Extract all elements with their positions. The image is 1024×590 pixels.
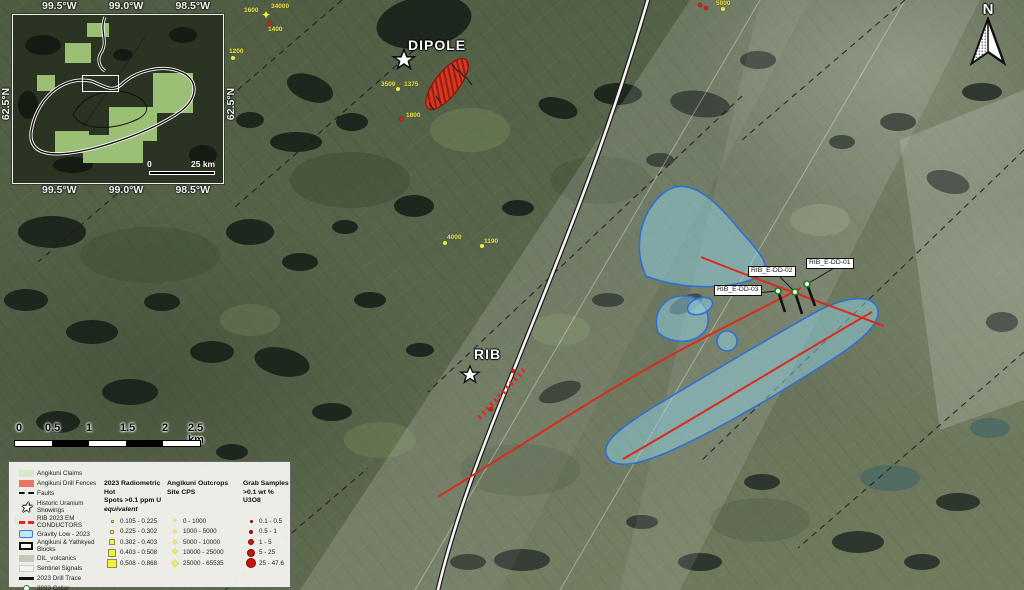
- legend-item-label: Faults: [37, 490, 54, 497]
- spot-value-label: 34000: [271, 3, 289, 10]
- legend-item-label: 2023 Collar: [37, 585, 69, 590]
- outcrops-class-row: 0 - 1000: [167, 516, 239, 527]
- ydot-marker: [480, 244, 484, 248]
- dipole-hotspot-polygon: [418, 52, 475, 116]
- radiometric-range: 0.508 - 0.868: [120, 560, 157, 567]
- radiometric-class-row: 0.225 - 0.302: [104, 527, 164, 538]
- legend-symbol-icon: [19, 521, 34, 524]
- ydot-marker: [396, 87, 400, 91]
- outcrops-header-2: Site CPS: [167, 489, 239, 498]
- legend-symbol-icon: [20, 500, 33, 514]
- legend-item-label: Angikuni & Yathkyed Blocks: [37, 539, 107, 553]
- scale-tick: 1: [86, 422, 92, 434]
- outcrops-star-icon: [173, 518, 177, 524]
- legend-item: Faults: [15, 488, 107, 498]
- legend-item: Gravity Low - 2023: [15, 529, 107, 539]
- inset-lon-labels-bottom: 99.5°W99.0°W98.5°W: [42, 184, 210, 196]
- legend-item: RIB 2023 EM CONDUCTORS: [15, 515, 107, 529]
- radiometric-range: 0.403 - 0.508: [120, 549, 157, 556]
- scale-tick: 0: [16, 422, 22, 434]
- legend-symbol-icon: [19, 577, 34, 580]
- radiometric-header-3: equivalent: [104, 506, 164, 515]
- inset-scale-bar: [149, 171, 215, 175]
- legend-grab-samples-column: Grab Samples >0.1 wt % U3O8 0.1 - 0.5 0.…: [243, 480, 291, 506]
- radiometric-header-2: Spots >0.1 ppm U: [104, 497, 164, 506]
- drill-collar-icon: [792, 289, 798, 295]
- rdot-marker: [511, 369, 515, 373]
- legend-symbol-icon: [19, 542, 33, 550]
- legend-item: Angikuni & Yathkyed Blocks: [15, 539, 107, 553]
- grab-header-1: Grab Samples: [243, 480, 291, 489]
- rdot-marker: [698, 3, 702, 7]
- lon-label: 99.0°W: [109, 0, 144, 12]
- legend-item-label: Angikuni Claims: [37, 470, 82, 477]
- dipole-target-label: DIPOLE: [408, 37, 466, 53]
- outcrops-range: 25000 - 65535: [183, 560, 224, 567]
- outcrops-range: 1000 - 5000: [183, 528, 217, 535]
- grab-range: 1 - 5: [259, 539, 272, 546]
- outcrops-star-icon: [172, 528, 177, 536]
- lon-label: 98.5°W: [175, 184, 210, 196]
- legend-item-list: Angikuni Claims Angikuni Drill Fences Fa…: [15, 468, 107, 590]
- radiometric-square-icon: [108, 549, 116, 557]
- spot-value-label: 1400: [268, 26, 282, 33]
- grab-dot-icon: [250, 520, 253, 523]
- legend-item-label: RIB 2023 EM CONDUCTORS: [37, 515, 107, 529]
- radiometric-class-row: 0.403 - 0.508: [104, 548, 164, 559]
- scale-tick: 1.5: [120, 422, 135, 434]
- outcrops-range: 5000 - 10000: [183, 539, 220, 546]
- map-scale-bar: 00.511.522.5 km: [12, 422, 222, 454]
- lon-label: 98.5°W: [175, 0, 210, 12]
- radiometric-range: 0.105 - 0.225: [120, 518, 157, 525]
- rib-target-label: RIB: [474, 346, 501, 362]
- radiometric-range: 0.302 - 0.403: [120, 539, 157, 546]
- radiometric-square-icon: [110, 530, 115, 535]
- outcrops-classes: 0 - 1000 1000 - 5000 5000 - 10000 10000 …: [167, 516, 239, 569]
- rdot-marker: [704, 6, 708, 10]
- radiometric-header-1: 2023 Radiometric Hot: [104, 480, 164, 497]
- legend-item: 2023 Collar: [15, 583, 107, 590]
- rdot-marker: [489, 407, 493, 411]
- legend-item: Sentinel Signals: [15, 563, 107, 573]
- grab-dot-icon: [247, 549, 255, 557]
- drill-collar-icon: [775, 288, 781, 294]
- lon-label: 99.5°W: [42, 184, 77, 196]
- legend-item-label: DIL_volcanics: [37, 555, 76, 562]
- grab-class-row: 5 - 25: [243, 548, 291, 559]
- ydot-marker: [231, 56, 235, 60]
- grab-header-2: >0.1 wt % U3O8: [243, 489, 291, 506]
- drillhole-label: RIB_E-DD-03: [714, 285, 762, 296]
- inset-scale-zero: 0: [147, 159, 152, 169]
- legend-item: 2023 Drill Trace: [15, 573, 107, 583]
- legend-item-label: Historic Uranium Showings: [37, 500, 107, 514]
- grab-class-row: 1 - 5: [243, 537, 291, 548]
- legend-item-label: Gravity Low - 2023: [37, 531, 90, 538]
- grab-range: 5 - 25: [259, 549, 275, 556]
- inset-locator-map: 0 25 km: [12, 14, 224, 184]
- legend-item-label: Angikuni Drill Fences: [37, 480, 96, 487]
- legend-item-label: Sentinel Signals: [37, 565, 82, 572]
- legend-symbol-icon: [19, 555, 34, 562]
- drillhole-label: RIB_E-DD-01: [806, 258, 854, 269]
- rdot-marker: [268, 21, 272, 25]
- grab-dot-icon: [248, 539, 254, 545]
- ydot-marker: [443, 241, 447, 245]
- spot-value-label: 5000: [716, 0, 730, 7]
- legend-item: Angikuni Claims: [15, 468, 107, 478]
- grab-dot-icon: [249, 530, 254, 535]
- legend-item-label: 2023 Drill Trace: [37, 575, 81, 582]
- exploration-map: DIPOLE RIB 0: [0, 0, 1024, 590]
- radiometric-classes: 0.105 - 0.225 0.225 - 0.302 0.302 - 0.40…: [104, 516, 164, 569]
- inset-view-extent-rect: [82, 75, 119, 92]
- outcrops-class-row: 1000 - 5000: [167, 527, 239, 538]
- inset-lat-label-left: 62.5°N: [0, 82, 12, 126]
- spot-value-label: 1375: [404, 81, 418, 88]
- legend-symbol-icon: [23, 585, 30, 590]
- spot-value-label: 1190: [484, 238, 498, 245]
- ystar-marker: ✦: [261, 10, 271, 20]
- scale-tick: 2: [162, 422, 168, 434]
- radiometric-square-icon: [111, 520, 114, 523]
- spot-value-label: 4000: [447, 234, 461, 241]
- legend-radiometric-column: 2023 Radiometric Hot Spots >0.1 ppm U eq…: [104, 480, 164, 514]
- radiometric-range: 0.225 - 0.302: [120, 528, 157, 535]
- inset-lon-labels-top: 99.5°W99.0°W98.5°W: [42, 0, 210, 12]
- radiometric-class-row: 0.302 - 0.403: [104, 537, 164, 548]
- grab-classes: 0.1 - 0.5 0.5 - 1 1 - 5 5 - 25 25 - 47.6: [243, 516, 291, 569]
- grab-range: 0.5 - 1: [259, 528, 277, 535]
- haze-bands: [300, 0, 1024, 590]
- spot-value-label: 1600: [244, 7, 258, 14]
- north-arrow: N: [962, 3, 1014, 73]
- scale-tick: 0.5: [45, 422, 60, 434]
- outcrops-range: 10000 - 25000: [183, 549, 224, 556]
- inset-lat-label-right: 62.5°N: [225, 82, 237, 126]
- legend-item: DIL_volcanics: [15, 553, 107, 563]
- legend-outcrops-column: Angikuni Outcrops Site CPS 0 - 1000 1000…: [167, 480, 239, 497]
- ydot-marker: [721, 7, 725, 11]
- grab-range: 0.1 - 0.5: [259, 518, 282, 525]
- outcrops-range: 0 - 1000: [183, 518, 206, 525]
- grab-class-row: 0.1 - 0.5: [243, 516, 291, 527]
- north-arrow-icon: [966, 17, 1010, 67]
- legend-symbol-icon: [19, 530, 33, 538]
- legend-item: Historic Uranium Showings: [15, 498, 107, 515]
- radiometric-square-icon: [109, 539, 115, 545]
- outcrops-class-row: 5000 - 10000: [167, 537, 239, 548]
- radiometric-square-icon: [107, 559, 117, 569]
- inset-scale-text: 25 km: [191, 159, 215, 169]
- legend-symbol-icon: [19, 565, 34, 572]
- drillhole-label: RIB_E-DD-02: [748, 266, 796, 277]
- radiometric-class-row: 0.105 - 0.225: [104, 516, 164, 527]
- spot-value-label: 1200: [229, 48, 243, 55]
- grab-range: 25 - 47.6: [259, 560, 284, 567]
- grab-class-row: 25 - 47.6: [243, 558, 291, 569]
- rdot-marker: [399, 117, 403, 121]
- lon-label: 99.5°W: [42, 0, 77, 12]
- spot-value-label: 1800: [406, 112, 420, 119]
- north-label: N: [962, 3, 1014, 17]
- map-legend: Angikuni Claims Angikuni Drill Fences Fa…: [8, 461, 291, 588]
- grab-dot-icon: [246, 558, 256, 568]
- legend-symbol-icon: [19, 470, 34, 477]
- grab-class-row: 0.5 - 1: [243, 527, 291, 538]
- drill-collar-icon: [804, 281, 810, 287]
- outcrops-class-row: 25000 - 65535: [167, 558, 239, 569]
- spot-value-label: 3500: [381, 81, 395, 88]
- outcrops-star-icon: [172, 538, 179, 547]
- outcrops-star-icon: [170, 556, 180, 571]
- outcrops-header-1: Angikuni Outcrops: [167, 480, 239, 489]
- scale-bar-segments: [14, 440, 201, 447]
- legend-symbol-icon: [19, 492, 34, 494]
- legend-symbol-icon: [19, 480, 34, 487]
- lon-label: 99.0°W: [109, 184, 144, 196]
- legend-item: Angikuni Drill Fences: [15, 478, 107, 488]
- radiometric-class-row: 0.508 - 0.868: [104, 558, 164, 569]
